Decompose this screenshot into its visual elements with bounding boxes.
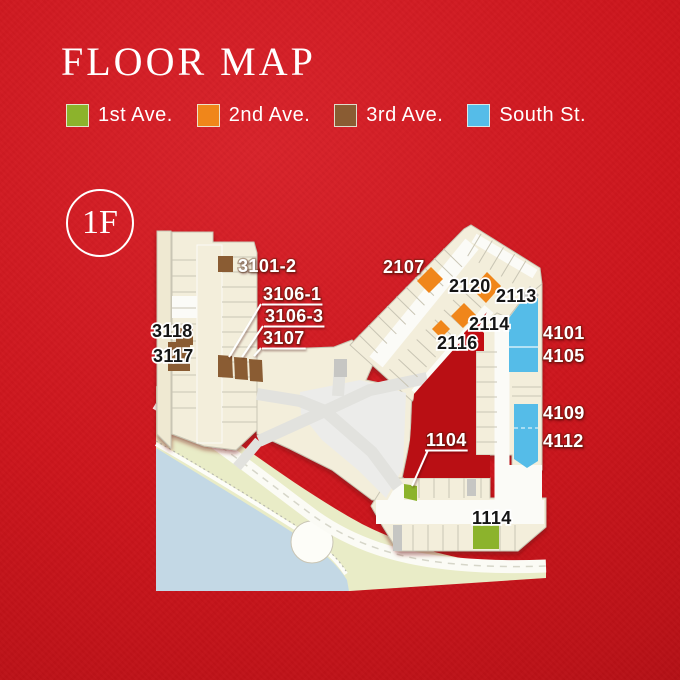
floor-badge: 1F	[66, 189, 134, 257]
corridor-left-notch	[172, 296, 197, 318]
map-label-2114: 2114	[469, 314, 510, 334]
legend-label: South St.	[499, 104, 586, 127]
unit-3101-2	[218, 256, 233, 272]
unit-gray-south-upper	[467, 479, 476, 496]
map-label-3106-1: 3106-1	[263, 284, 321, 304]
legend-label: 3rd Ave.	[366, 104, 443, 127]
unit-3106-3	[234, 357, 248, 380]
legend: 1st Ave.2nd Ave.3rd Ave.South St.	[66, 104, 586, 127]
map-label-2113: 2113	[496, 286, 537, 306]
map-label-3101-2: 3101-2	[238, 256, 296, 276]
floor-map-page: FLOOR MAP 1st Ave.2nd Ave.3rd Ave.South …	[0, 0, 680, 680]
legend-swatch	[467, 104, 490, 127]
map-label-2120: 2120	[449, 276, 491, 296]
legend-swatch	[66, 104, 89, 127]
unit-3106-1	[218, 355, 233, 378]
unit-1114	[473, 525, 499, 549]
map-label-2107: 2107	[383, 257, 425, 277]
legend-item-3rd-ave: 3rd Ave.	[334, 104, 443, 127]
unit-4109-4112	[514, 404, 538, 468]
legend-item-2nd-ave: 2nd Ave.	[197, 104, 310, 127]
unit-3107	[249, 359, 263, 382]
legend-item-1st-ave: 1st Ave.	[66, 104, 173, 127]
map-label-3117: 3117	[153, 346, 194, 366]
legend-swatch	[334, 104, 357, 127]
map-label-3118: 3118	[152, 321, 193, 341]
map-label-1104: 1104	[426, 430, 467, 450]
legend-label: 2nd Ave.	[229, 104, 310, 127]
unit-gray-central	[334, 359, 347, 377]
map-label-3107: 3107	[263, 328, 305, 348]
map-label-4112: 4112	[543, 431, 584, 451]
map-label-3106-3: 3106-3	[265, 306, 323, 326]
map-label-4105: 4105	[543, 346, 585, 366]
map-label-1114: 1114	[472, 508, 512, 528]
unit-gray-south-lower	[393, 525, 402, 551]
floor-badge-label: 1F	[82, 204, 118, 242]
floor-map: 3101-23106-13106-33107311831172107212021…	[0, 0, 680, 680]
legend-item-south-st: South St.	[467, 104, 586, 127]
page-title: FLOOR MAP	[61, 42, 316, 82]
map-label-2116: 2116	[437, 333, 478, 353]
map-label-4101: 4101	[543, 323, 585, 343]
legend-swatch	[197, 104, 220, 127]
legend-label: 1st Ave.	[98, 104, 173, 127]
map-label-4109: 4109	[543, 403, 585, 423]
